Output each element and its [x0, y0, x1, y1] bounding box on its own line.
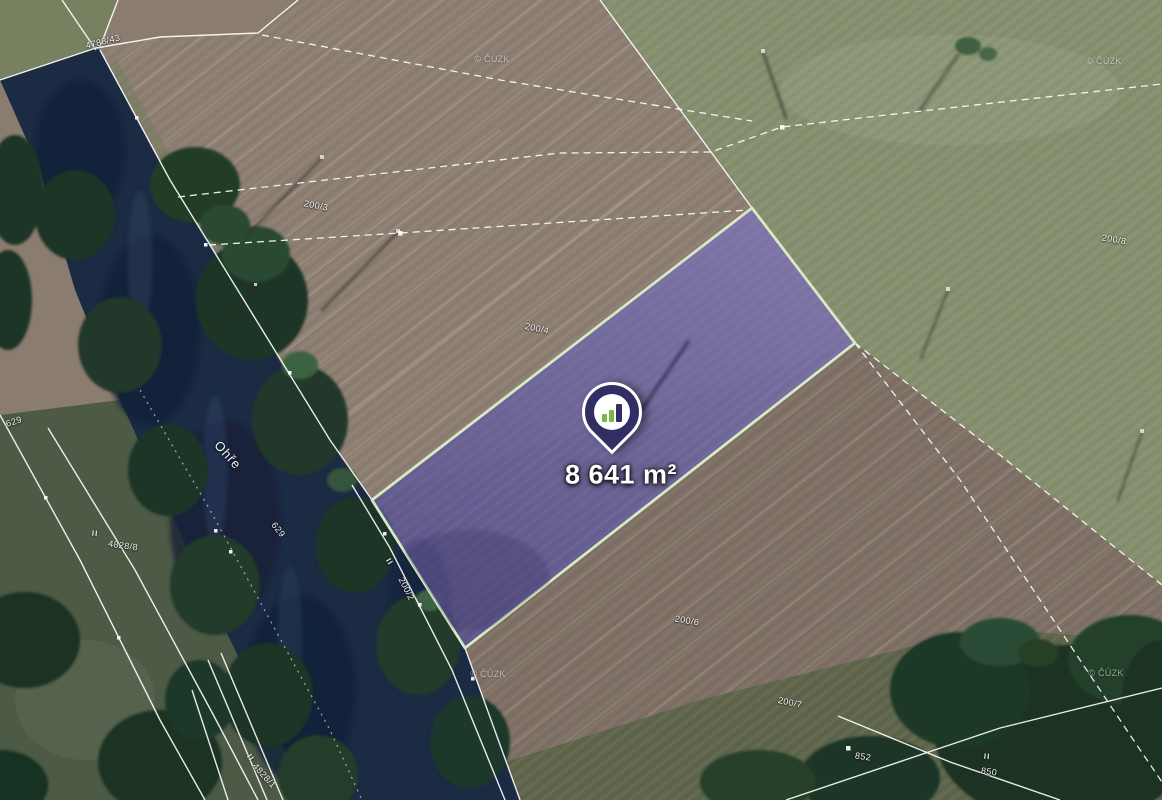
- cuzk-copyright: © ČÚZK: [1088, 668, 1123, 678]
- satellite-imagery: [0, 0, 1162, 800]
- logo-bar-small: [602, 414, 607, 422]
- logo-bar-medium: [609, 410, 614, 422]
- satellite-map-canvas[interactable]: 4788/43 200/3 200/4 200/8 200/2 200/6 20…: [0, 0, 1162, 800]
- boundary-mark: II: [91, 530, 98, 539]
- cuzk-copyright: © ČÚZK: [1086, 56, 1121, 66]
- cuzk-copyright: © ČÚZK: [470, 669, 505, 679]
- logo-bar-tall: [616, 404, 622, 422]
- bar-chart-logo-icon: [594, 394, 630, 430]
- area-label: 8 641 m²: [565, 460, 677, 491]
- cuzk-copyright: © ČÚZK: [474, 54, 509, 64]
- boundary-mark: II: [983, 753, 990, 762]
